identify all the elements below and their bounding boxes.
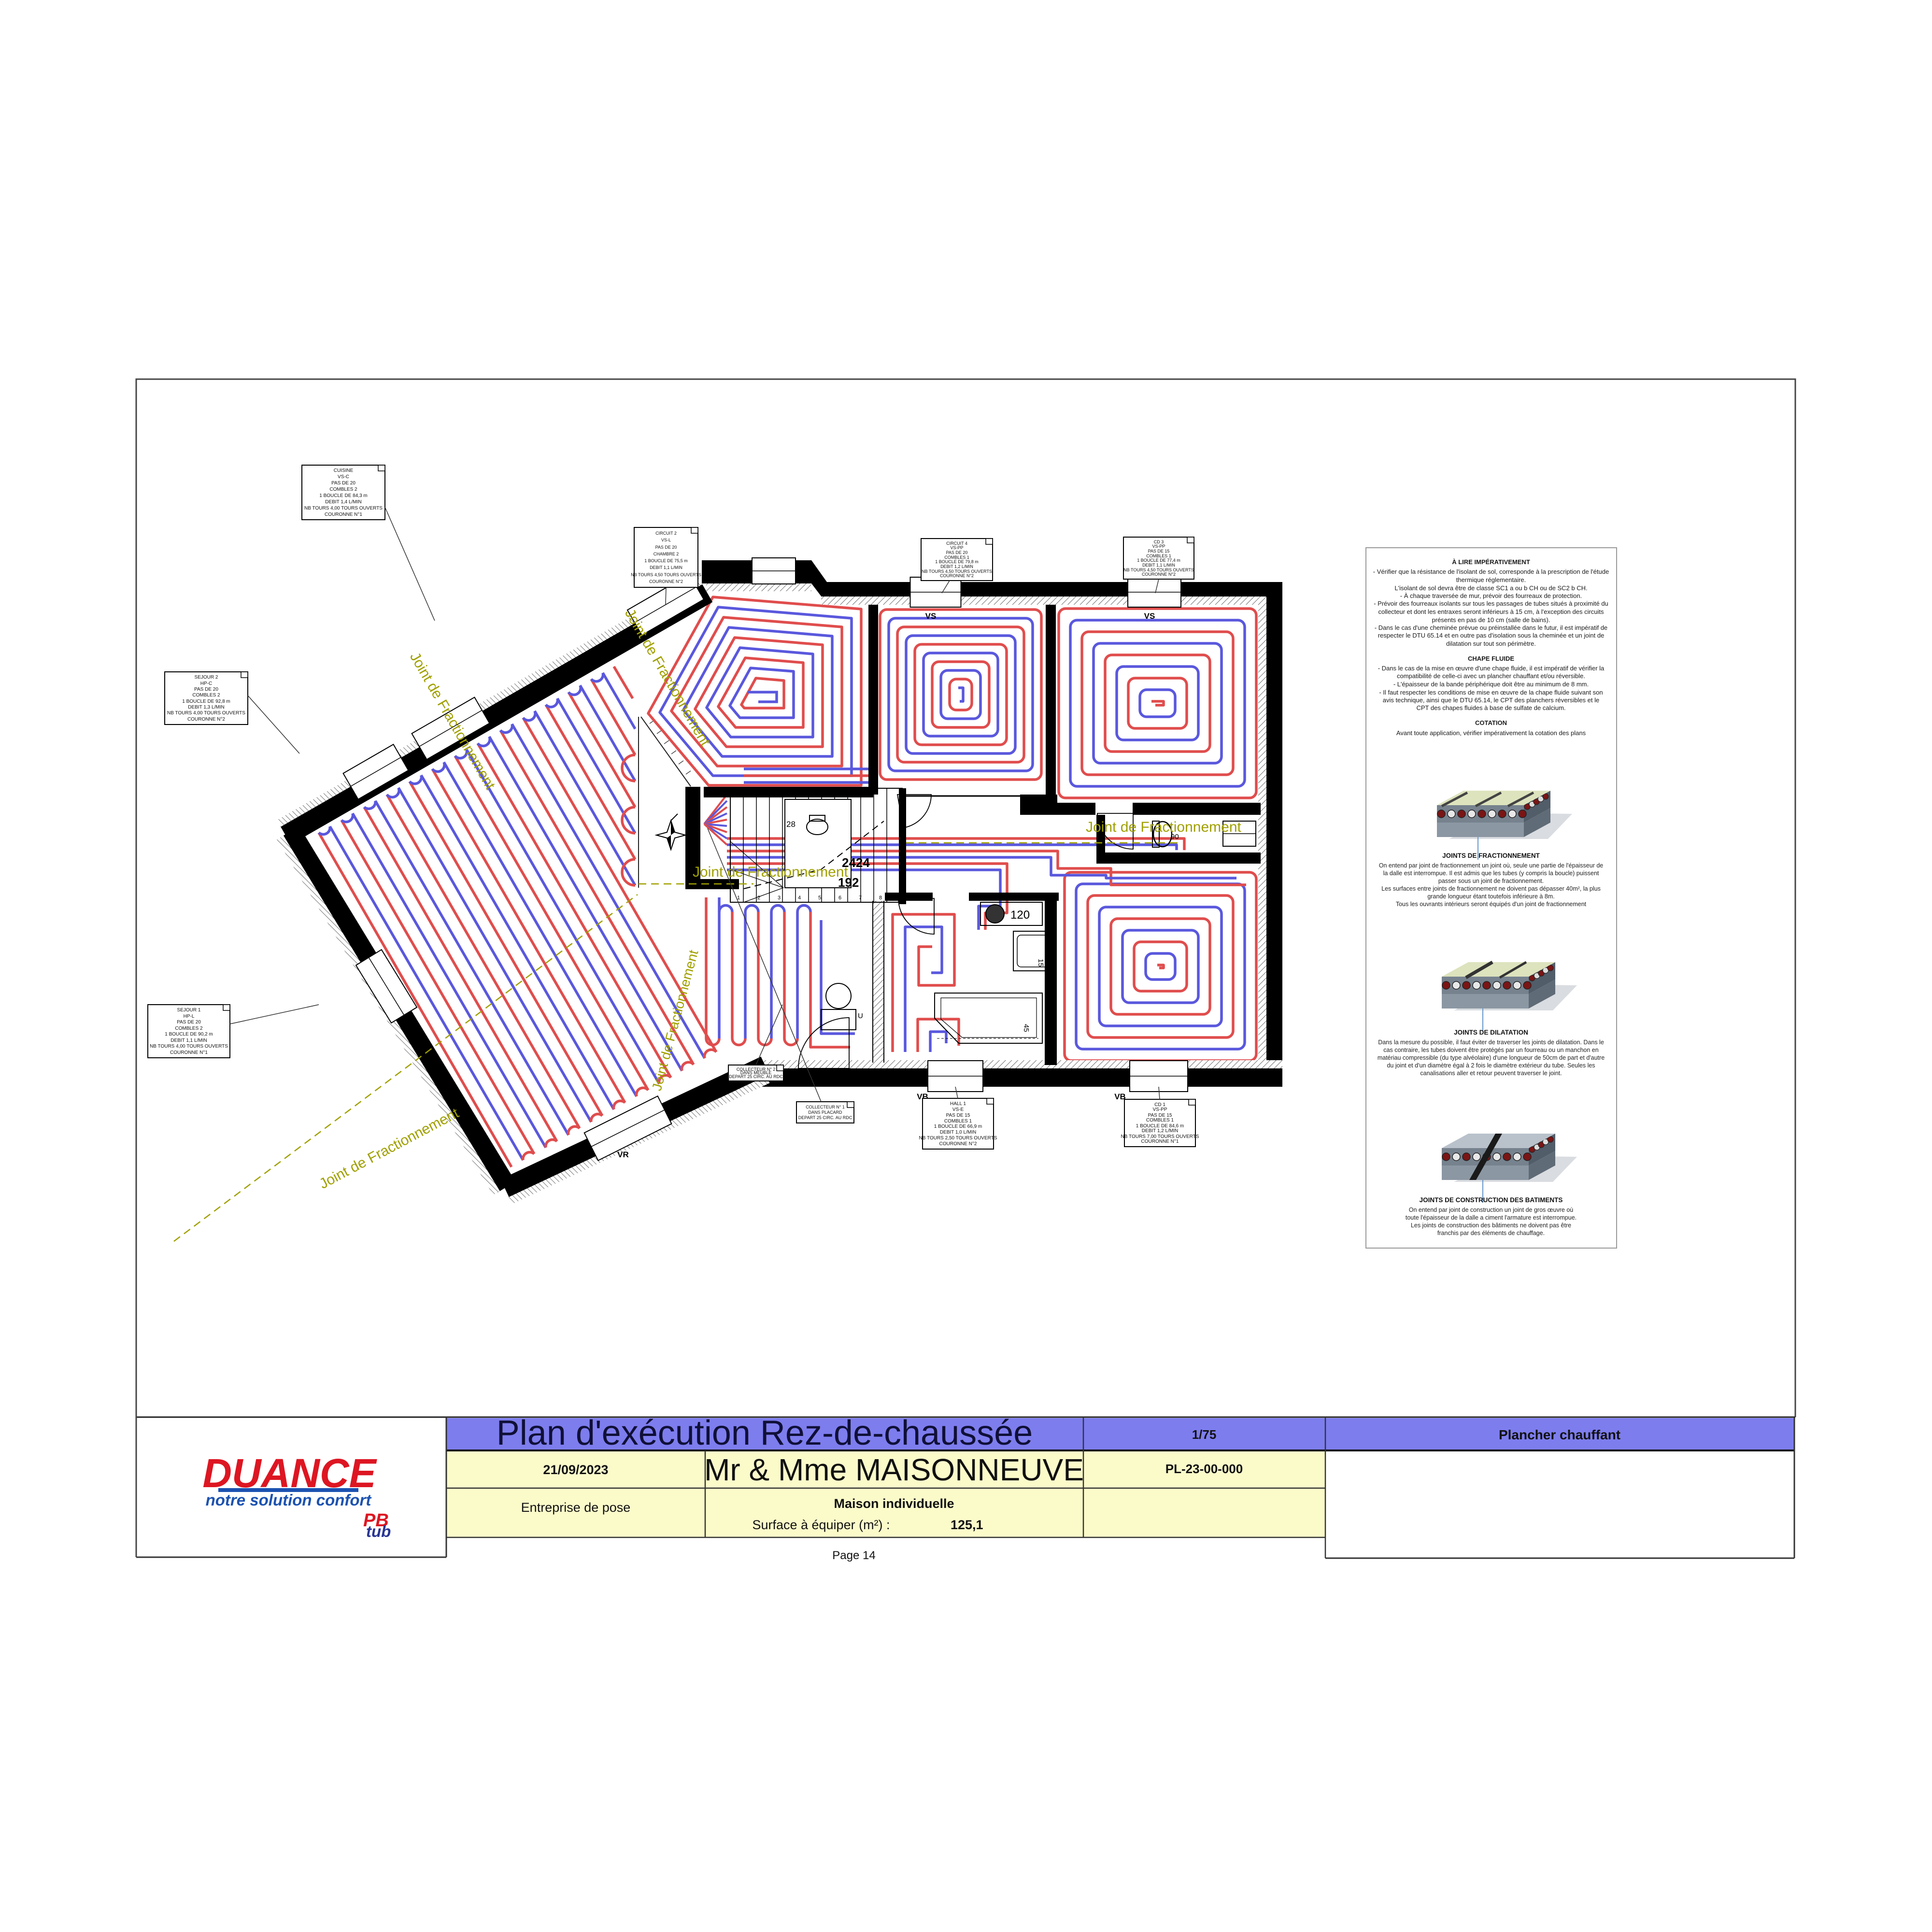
svg-text:VS: VS: [1144, 611, 1155, 621]
svg-text:tub: tub: [366, 1522, 391, 1540]
svg-text:On entend par joint de constru: On entend par joint de construction un j…: [1409, 1207, 1574, 1213]
svg-text:avis technique, ainsi que le D: avis technique, ainsi que le DTU 65.14, …: [1383, 696, 1600, 704]
svg-text:- Il faut respecter les condit: - Il faut respecter les conditions de mi…: [1379, 689, 1603, 696]
svg-text:SEJOUR 1: SEJOUR 1: [177, 1008, 201, 1013]
svg-text:Maison individuelle: Maison individuelle: [834, 1496, 954, 1511]
svg-text:VS-E: VS-E: [952, 1107, 964, 1112]
svg-text:Tous les ouvrants intérieurs s: Tous les ouvrants intérieurs seront équi…: [1396, 901, 1587, 908]
svg-text:2: 2: [757, 895, 760, 901]
svg-text:DEBIT 1,1 L/MIN: DEBIT 1,1 L/MIN: [650, 565, 682, 570]
svg-text:3: 3: [778, 895, 781, 901]
svg-text:Les joints de construction des: Les joints de construction des bâtiments…: [1411, 1222, 1571, 1229]
svg-text:grande longueur étant toutefoi: grande longueur étant toutefois inférieu…: [1427, 893, 1554, 900]
svg-text:JOINTS DE DILATATION: JOINTS DE DILATATION: [1454, 1029, 1528, 1036]
svg-text:PAS DE 20: PAS DE 20: [946, 550, 968, 555]
svg-text:DEBIT 1,1 L/MIN: DEBIT 1,1 L/MIN: [170, 1038, 207, 1043]
svg-text:1/75: 1/75: [1192, 1427, 1217, 1442]
svg-text:COMBLES 2: COMBLES 2: [192, 693, 220, 698]
svg-text:CHAMBRE 2: CHAMBRE 2: [653, 552, 679, 556]
svg-text:COLLECTEUR N° 1: COLLECTEUR N° 1: [806, 1105, 845, 1109]
svg-text:Plancher chauffant: Plancher chauffant: [1499, 1427, 1620, 1442]
svg-text:PAS DE 15: PAS DE 15: [1148, 549, 1170, 554]
svg-text:respecter le DTU 65.14 et en o: respecter le DTU 65.14 et en outre pas d…: [1378, 632, 1605, 639]
svg-text:NB TOURS 4,00 TOURS OUVERTS: NB TOURS 4,00 TOURS OUVERTS: [304, 506, 383, 511]
svg-text:15: 15: [1037, 959, 1045, 967]
svg-text:1 BOUCLE DE 84,3 m: 1 BOUCLE DE 84,3 m: [319, 493, 367, 498]
svg-text:7: 7: [859, 895, 862, 901]
svg-text:PAS DE 15: PAS DE 15: [946, 1113, 970, 1118]
svg-text:PAS DE 20: PAS DE 20: [194, 687, 218, 692]
svg-text:Dans la mesure du possible, i: Dans la mesure du possible, il faut évit…: [1378, 1039, 1604, 1046]
svg-text:Plan d'exécution Rez-de-chauss: Plan d'exécution Rez-de-chaussée: [497, 1414, 1033, 1452]
svg-text:- À chaque traversée de mur, p: - À chaque traversée de mur, prévoir des…: [1400, 592, 1582, 599]
svg-text:COMBLES 2: COMBLES 2: [175, 1026, 203, 1031]
svg-text:1 BOUCLE DE 77,4 m: 1 BOUCLE DE 77,4 m: [1137, 558, 1180, 563]
svg-text:franchis par des éléments de c: franchis par des éléments de chauffage.: [1437, 1230, 1545, 1236]
svg-text:U: U: [858, 1012, 863, 1020]
svg-text:125,1: 125,1: [951, 1518, 983, 1532]
svg-text:DEBIT 1,2 L/MIN: DEBIT 1,2 L/MIN: [1142, 1128, 1178, 1134]
svg-text:COTATION: COTATION: [1475, 719, 1507, 726]
svg-text:DANS PLACARD: DANS PLACARD: [808, 1110, 842, 1115]
svg-text:présents en pas de 10 cm (sall: présents en pas de 10 cm (salle de bains…: [1432, 616, 1550, 624]
svg-text:matériau compressible (du type: matériau compressible (du type alvéolair…: [1378, 1054, 1605, 1061]
svg-text:COURONNE N°2: COURONNE N°2: [649, 579, 683, 584]
svg-text:PL-23-00-000: PL-23-00-000: [1165, 1462, 1243, 1476]
svg-text:120: 120: [1010, 909, 1030, 922]
svg-text:la dalle est interrompue. Il e: la dalle est interrompue. Il est admis q…: [1383, 870, 1599, 877]
svg-text:1 BOUCLE DE 75,5 m: 1 BOUCLE DE 75,5 m: [644, 558, 688, 563]
svg-text:L'isolant de sol devra être de: L'isolant de sol devra être de classe SC…: [1394, 584, 1587, 592]
svg-text:VS-L: VS-L: [661, 538, 671, 542]
svg-text:Joint de Fractionnement: Joint de Fractionnement: [693, 864, 849, 880]
svg-text:Entreprise de pose: Entreprise de pose: [521, 1500, 631, 1515]
svg-text:COURONNE N°2: COURONNE N°2: [187, 717, 225, 722]
svg-text:4: 4: [798, 895, 801, 901]
svg-text:VR: VR: [617, 1150, 629, 1159]
svg-text:VS-PP: VS-PP: [950, 545, 963, 550]
svg-text:COURONNE N°1: COURONNE N°1: [1141, 1139, 1179, 1144]
svg-text:1 BOUCLE DE 90,2 m: 1 BOUCLE DE 90,2 m: [165, 1032, 213, 1037]
svg-text:- Vérifier que la résistance d: - Vérifier que la résistance de l'isolan…: [1373, 568, 1609, 575]
svg-text:passer sous un joint de fracti: passer sous un joint de fractionnement.: [1438, 878, 1544, 884]
svg-text:COURONNE N°2: COURONNE N°2: [939, 1141, 977, 1147]
svg-text:Mr & Mme MAISONNEUVE: Mr & Mme MAISONNEUVE: [704, 1452, 1084, 1487]
svg-text:collecteur et dont les entraxe: collecteur et dont les entraxes seront i…: [1378, 608, 1604, 615]
svg-text:NB TOURS 2,50 TOURS OUVERTS: NB TOURS 2,50 TOURS OUVERTS: [919, 1136, 997, 1141]
svg-text:DEPART 25 CIRC. AU RDC: DEPART 25 CIRC. AU RDC: [798, 1115, 852, 1120]
svg-text:VS-C: VS-C: [338, 474, 349, 480]
svg-text:PAS DE 20: PAS DE 20: [177, 1020, 201, 1025]
svg-text:CPT des chapes fluides à base: CPT des chapes fluides à base de sulfate…: [1416, 704, 1565, 711]
svg-text:VS: VS: [925, 611, 937, 621]
svg-text:VS-PP: VS-PP: [1152, 1107, 1167, 1112]
svg-text:COURONNE N°1: COURONNE N°1: [325, 512, 362, 517]
svg-text:NB TOURS 4,00 TOURS OUVERTS: NB TOURS 4,00 TOURS OUVERTS: [150, 1044, 228, 1049]
svg-text:thermique réglementaire.: thermique réglementaire.: [1456, 576, 1526, 583]
svg-text:Page 14: Page 14: [832, 1549, 875, 1562]
svg-text:DEBIT 1,2 L/MIN: DEBIT 1,2 L/MIN: [940, 564, 973, 569]
svg-text:DEBIT 1,3 L/MIN: DEBIT 1,3 L/MIN: [188, 705, 224, 710]
svg-text:COURONNE N°2: COURONNE N°2: [940, 573, 974, 578]
svg-text:PAS DE 20: PAS DE 20: [331, 481, 355, 486]
svg-text:1 BOUCLE DE 92,8 m: 1 BOUCLE DE 92,8 m: [182, 699, 230, 704]
svg-text:COMBLES 1: COMBLES 1: [1146, 1118, 1174, 1123]
svg-text:dilatation sur tout son périmè: dilatation sur tout son périmètre.: [1446, 640, 1536, 647]
svg-text:Joint de Fractionnement: Joint de Fractionnement: [1086, 819, 1242, 835]
svg-text:45: 45: [1022, 1024, 1030, 1032]
svg-text:PAS DE 20: PAS DE 20: [655, 545, 677, 550]
svg-text:On entend par joint de fractio: On entend par joint de fractionnement un…: [1379, 862, 1604, 869]
svg-text:5: 5: [818, 895, 821, 901]
svg-text:NB TOURS 4,00 TOURS OUVERTS: NB TOURS 4,00 TOURS OUVERTS: [167, 710, 245, 716]
svg-text:COMBLES 1: COMBLES 1: [944, 1119, 972, 1124]
svg-text:COURONNE N°2: COURONNE N°2: [1142, 572, 1176, 577]
svg-text:JOINTS DE CONSTRUCTION DES BAT: JOINTS DE CONSTRUCTION DES BATIMENTS: [1420, 1196, 1563, 1204]
svg-text:DEBIT 1,0 L/MIN: DEBIT 1,0 L/MIN: [940, 1130, 976, 1135]
svg-text:8: 8: [879, 895, 882, 901]
svg-text:du joint et d'un diamètre égal: du joint et d'un diamètre égal à 2 fois …: [1387, 1062, 1595, 1069]
svg-text:COURONNE N°1: COURONNE N°1: [170, 1050, 208, 1055]
svg-text:DEBIT 1,4 L/MIN: DEBIT 1,4 L/MIN: [325, 499, 361, 505]
svg-text:CIRCUIT 2: CIRCUIT 2: [655, 531, 677, 536]
svg-text:VS-PP: VS-PP: [1152, 544, 1165, 549]
svg-text:notre solution confort: notre solution confort: [206, 1491, 372, 1509]
svg-text:HALL 1: HALL 1: [950, 1101, 966, 1107]
svg-text:SEJOUR 2: SEJOUR 2: [195, 675, 218, 680]
svg-text:Surface à équiper (m²) :: Surface à équiper (m²) :: [752, 1518, 890, 1532]
svg-text:CHAPE FLUIDE: CHAPE FLUIDE: [1468, 655, 1514, 662]
svg-text:- Dans le cas d'une cheminée p: - Dans le cas d'une cheminée prévue ou p…: [1375, 624, 1607, 631]
svg-text:COMBLES 2: COMBLES 2: [329, 487, 357, 492]
svg-text:HP-L: HP-L: [184, 1014, 195, 1019]
svg-text:CUISINE: CUISINE: [334, 468, 354, 473]
svg-text:HP-C: HP-C: [200, 681, 212, 686]
svg-text:À LIRE IMPÉRATIVEMENT: À LIRE IMPÉRATIVEMENT: [1452, 558, 1530, 566]
svg-text:1 BOUCLE DE 66,9 m: 1 BOUCLE DE 66,9 m: [934, 1124, 982, 1129]
svg-text:cas contraire, les tubes doive: cas contraire, les tubes doivent être pr…: [1383, 1047, 1598, 1053]
svg-text:21/09/2023: 21/09/2023: [543, 1463, 608, 1477]
svg-text:canalisations aller et retour: canalisations aller et retour peuvent tr…: [1420, 1070, 1562, 1077]
svg-text:NB TOURS 4,50 TOURS OUVERTS: NB TOURS 4,50 TOURS OUVERTS: [631, 572, 701, 577]
svg-text:Les surfaces entre joints de f: Les surfaces entre joints de fractionnem…: [1381, 885, 1601, 892]
svg-text:- Prévoir des fourreaux isolan: - Prévoir des fourreaux isolants sur tou…: [1374, 600, 1608, 607]
svg-text:Avant toute application, vérif: Avant toute application, vérifier impéra…: [1396, 729, 1586, 737]
svg-text:compatibilité de celle-ci avec: compatibilité de celle-ci avec un planch…: [1397, 672, 1585, 680]
svg-text:toute l'épaisseur de la dalle: toute l'épaisseur de la dalle a ciment l…: [1406, 1214, 1577, 1221]
svg-text:- Dans le cas de la mise en œu: - Dans le cas de la mise en œuvre d'une …: [1378, 665, 1605, 672]
svg-text:1 BOUCLE DE 79,8 m: 1 BOUCLE DE 79,8 m: [935, 559, 979, 564]
svg-text:- L'épaisseur de la bande péri: - L'épaisseur de la bande périphérique d…: [1393, 681, 1589, 688]
svg-text:6: 6: [838, 895, 841, 901]
svg-text:JOINTS DE FRACTIONNEMENT: JOINTS DE FRACTIONNEMENT: [1442, 852, 1540, 859]
svg-text:DEBIT 1,1 L/MIN: DEBIT 1,1 L/MIN: [1142, 563, 1175, 568]
svg-text:28: 28: [786, 820, 796, 829]
svg-text:DEPART 25 CIRC. AU RDC: DEPART 25 CIRC. AU RDC: [729, 1074, 783, 1079]
